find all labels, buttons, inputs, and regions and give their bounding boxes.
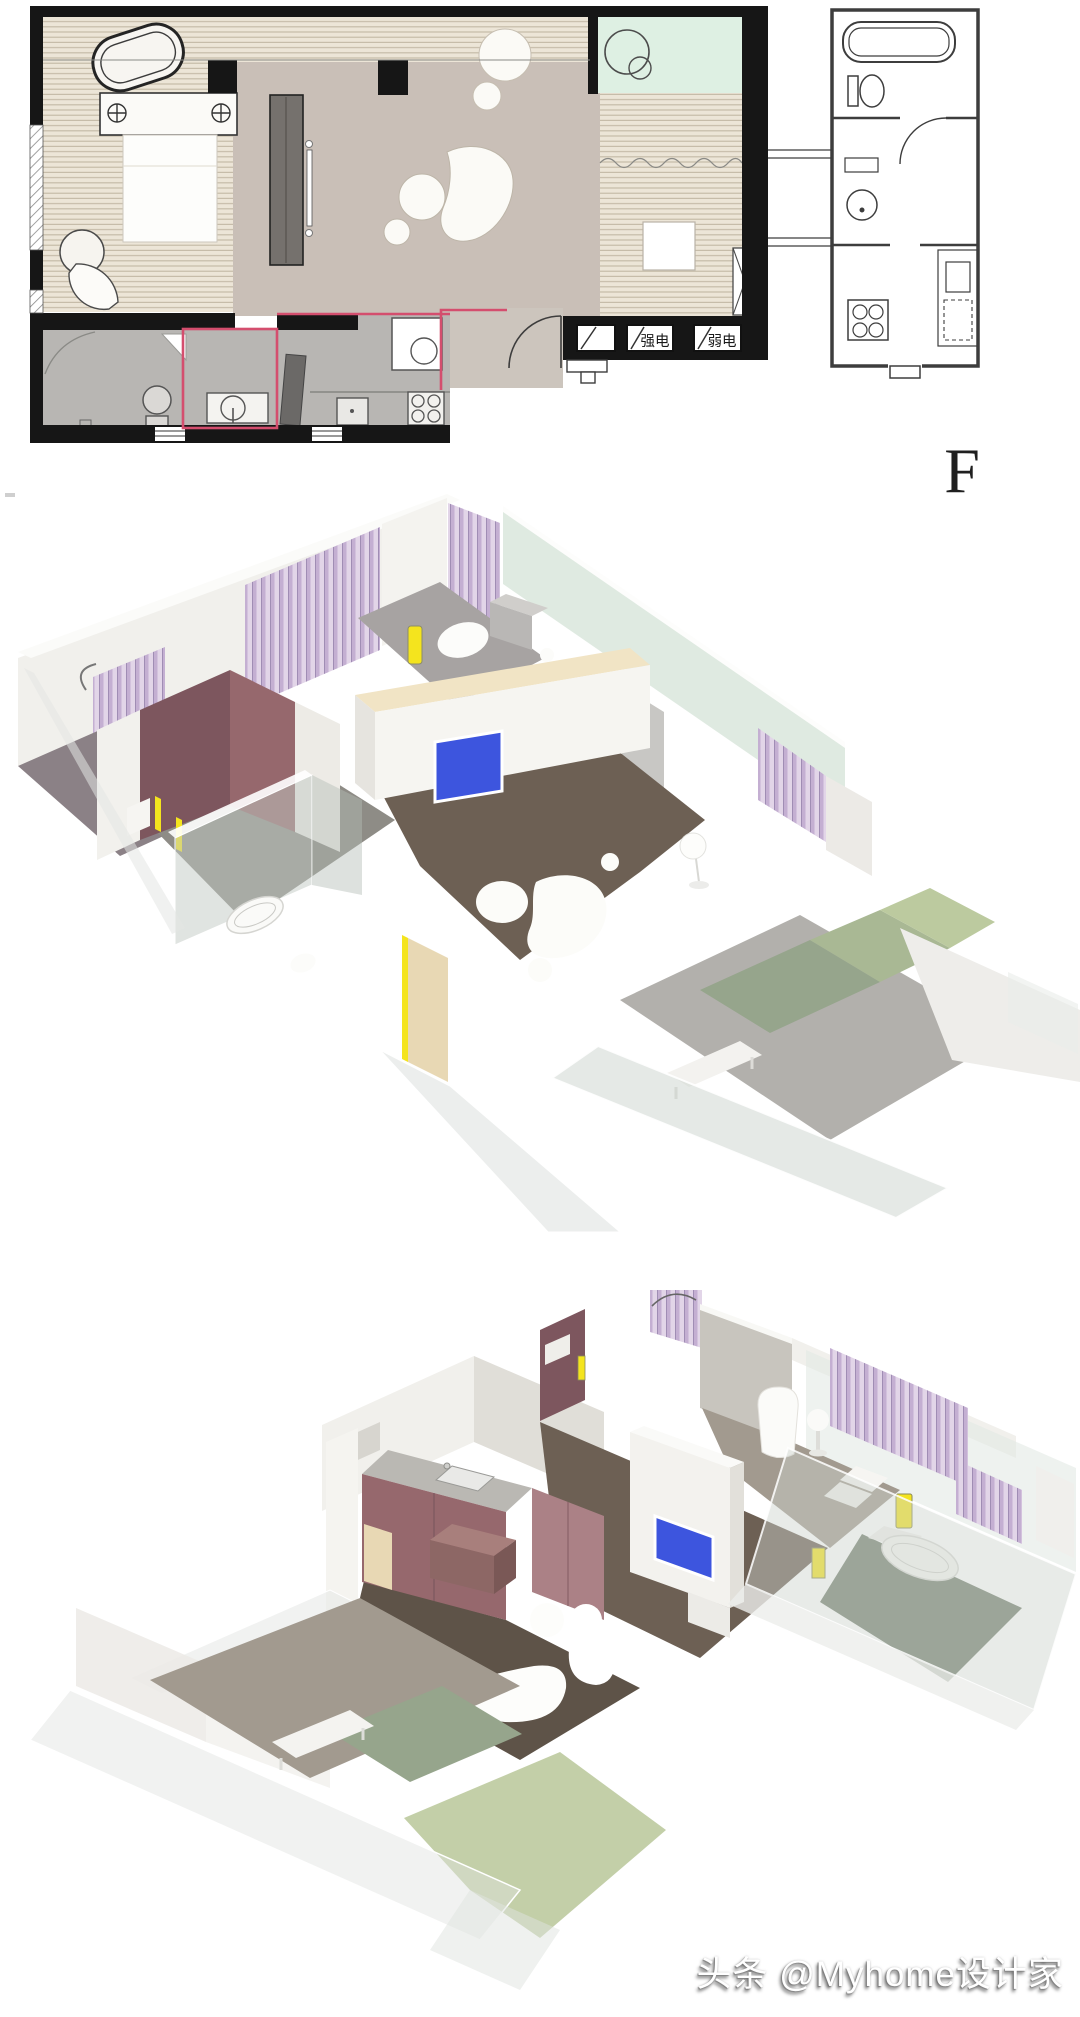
toilet <box>143 386 171 414</box>
floor-lamp <box>680 833 706 859</box>
axon-view-top <box>0 490 1080 1300</box>
tan-door-2 <box>364 1524 392 1590</box>
line-plan <box>768 10 978 378</box>
headboard-console <box>100 93 237 135</box>
tick-mark <box>5 493 15 497</box>
tv-panel <box>307 150 312 226</box>
stool <box>384 219 410 245</box>
window-hatch-1 <box>30 125 43 250</box>
floor-plan: 强电 弱电 F <box>0 0 1080 500</box>
yellow-lamp-small <box>578 1356 585 1380</box>
lineplan-basin <box>847 190 877 220</box>
corridor-lines <box>768 150 832 246</box>
lineplan-shelf <box>845 158 878 172</box>
lineplan-cistern <box>848 76 858 106</box>
toilet-3d <box>288 950 319 976</box>
pouf <box>399 174 445 220</box>
strong-electric-label: 强电 <box>641 333 670 350</box>
electric-niches: 强电 弱电 <box>577 325 741 351</box>
window-hatch-2 <box>30 290 43 313</box>
weak-electric-label: 弱电 <box>708 333 737 350</box>
pouf-3d <box>476 881 528 923</box>
tall-chair <box>758 1387 798 1458</box>
bed <box>123 135 217 242</box>
tv-screen <box>435 731 502 802</box>
armchair-ottoman <box>473 82 501 110</box>
sofa-3d <box>527 875 606 958</box>
dining-table <box>643 222 695 270</box>
tan-door <box>408 938 448 1082</box>
armchair <box>479 29 531 81</box>
blob-head <box>570 1604 602 1636</box>
watermark: 头条 @Myhome设计家 <box>697 1946 1064 1997</box>
dining-wood-floor <box>600 93 742 316</box>
lineplan-toilet <box>860 75 884 107</box>
page: 强电 弱电 F <box>0 0 1080 2017</box>
plan-balcony-green <box>590 16 742 93</box>
yellow-strip-1 <box>155 796 161 832</box>
axon-view-bottom <box>0 1290 1080 2017</box>
yellow-lamp <box>408 626 422 664</box>
foyer-floor <box>450 308 563 388</box>
entry-step <box>567 360 607 372</box>
round-table <box>807 1409 829 1431</box>
